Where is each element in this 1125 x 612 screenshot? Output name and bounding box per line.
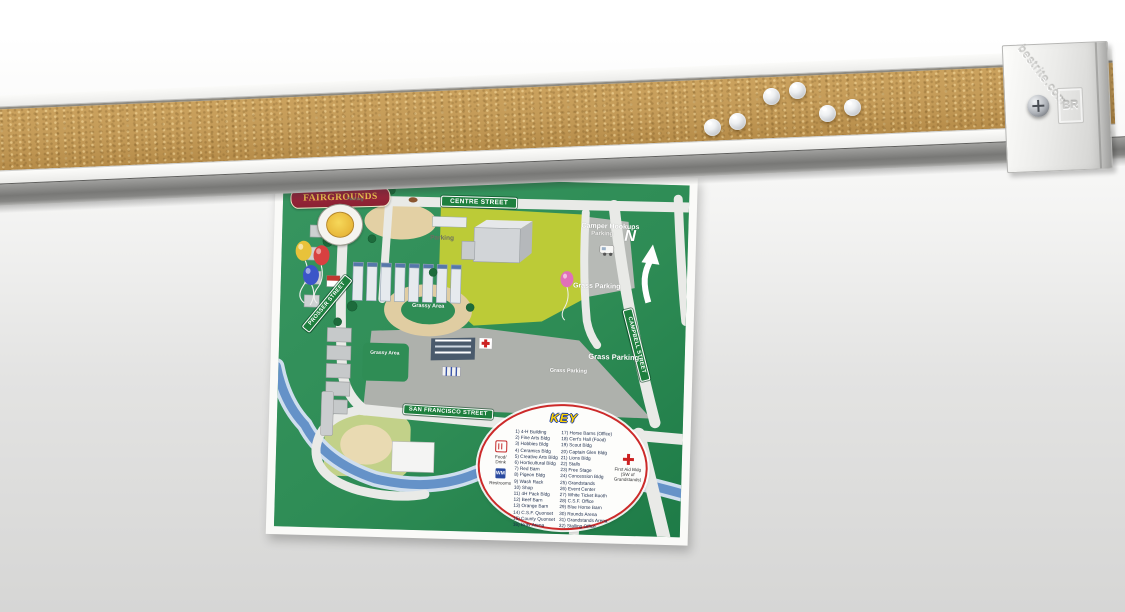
label-grass-parking-a: Grass Parking: [569, 282, 625, 291]
end-cap: bestrite.com BR: [1002, 41, 1113, 173]
fairgrounds-map: FAIRGROUNDS CENTRE STREET SAN FRANCISCO …: [266, 166, 698, 546]
label-parking-field: Parking: [420, 234, 464, 242]
label-parking-lot: Parking: [582, 231, 622, 239]
map-key-legend: KEY Food/ Drink WM Restrooms 1) 4-H Buil…: [476, 402, 649, 533]
food-drink-label: Food/ Drink: [490, 455, 512, 465]
ticket-booth: [442, 367, 460, 376]
key-items-left: 1) 4-H Building2) Fine Arts Bldg3) Hobbi…: [513, 427, 559, 522]
push-pin: [789, 82, 806, 99]
key-items-right: 17) Horse Barns (Office)18) Cert's Hall …: [559, 428, 612, 523]
key-item: 32) Stalling Office: [559, 523, 610, 531]
label-grass-parking-b: Grass Parking: [583, 353, 645, 363]
label-grassy-area-1: Grassy Area: [408, 303, 448, 310]
grandstand: [431, 336, 476, 361]
key-first-aid: First Aid Bldg (SW of Grandstands): [613, 430, 643, 525]
restrooms-icon: WM: [495, 468, 505, 478]
first-aid-label: First Aid Bldg (SW of Grandstands): [614, 467, 642, 483]
end-cap-edge: [1095, 42, 1102, 168]
logo-emblem-sun: [326, 211, 355, 238]
push-pin: [844, 99, 861, 116]
product-photo: FAIRGROUNDS CENTRE STREET SAN FRANCISCO …: [0, 0, 1125, 612]
key-item: 16) Bray Arena: [513, 522, 556, 529]
food-drink-icon: [495, 440, 507, 452]
screw: [1027, 94, 1050, 117]
bulletin-bar: bestrite.com BR: [0, 45, 1125, 216]
key-services: Food/ Drink WM Restrooms: [488, 426, 512, 521]
logo-emblem: [317, 203, 364, 246]
street-sign-centre: CENTRE STREET: [441, 196, 517, 209]
label-grassy-area-2: Grassy Area: [365, 351, 405, 358]
push-pin: [819, 105, 836, 122]
push-pin: [763, 88, 780, 105]
first-aid-building: [479, 338, 492, 349]
map-print-area: FAIRGROUNDS CENTRE STREET SAN FRANCISCO …: [274, 174, 690, 537]
label-grass-parking-c: Grass Parking: [546, 368, 590, 375]
first-aid-cross-icon: [622, 454, 633, 465]
label-north: N: [618, 228, 642, 247]
restrooms-label: Restrooms: [489, 481, 511, 487]
push-pin: [704, 119, 721, 136]
brand-seal: BR: [1057, 87, 1084, 124]
push-pin: [729, 113, 746, 130]
